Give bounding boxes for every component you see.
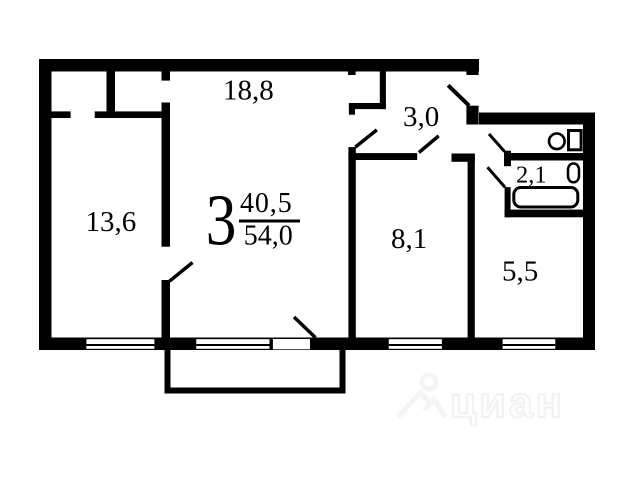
- svg-text:40,5: 40,5: [240, 188, 293, 219]
- svg-text:3: 3: [206, 180, 237, 261]
- svg-text:8,1: 8,1: [391, 223, 427, 255]
- svg-text:18,8: 18,8: [223, 75, 274, 107]
- svg-text:5,5: 5,5: [502, 256, 538, 288]
- svg-text:циан: циан: [450, 379, 565, 427]
- svg-text:2,1: 2,1: [516, 162, 547, 189]
- svg-text:13,6: 13,6: [86, 206, 137, 238]
- svg-text:54,0: 54,0: [244, 221, 293, 252]
- svg-text:3,0: 3,0: [403, 101, 439, 133]
